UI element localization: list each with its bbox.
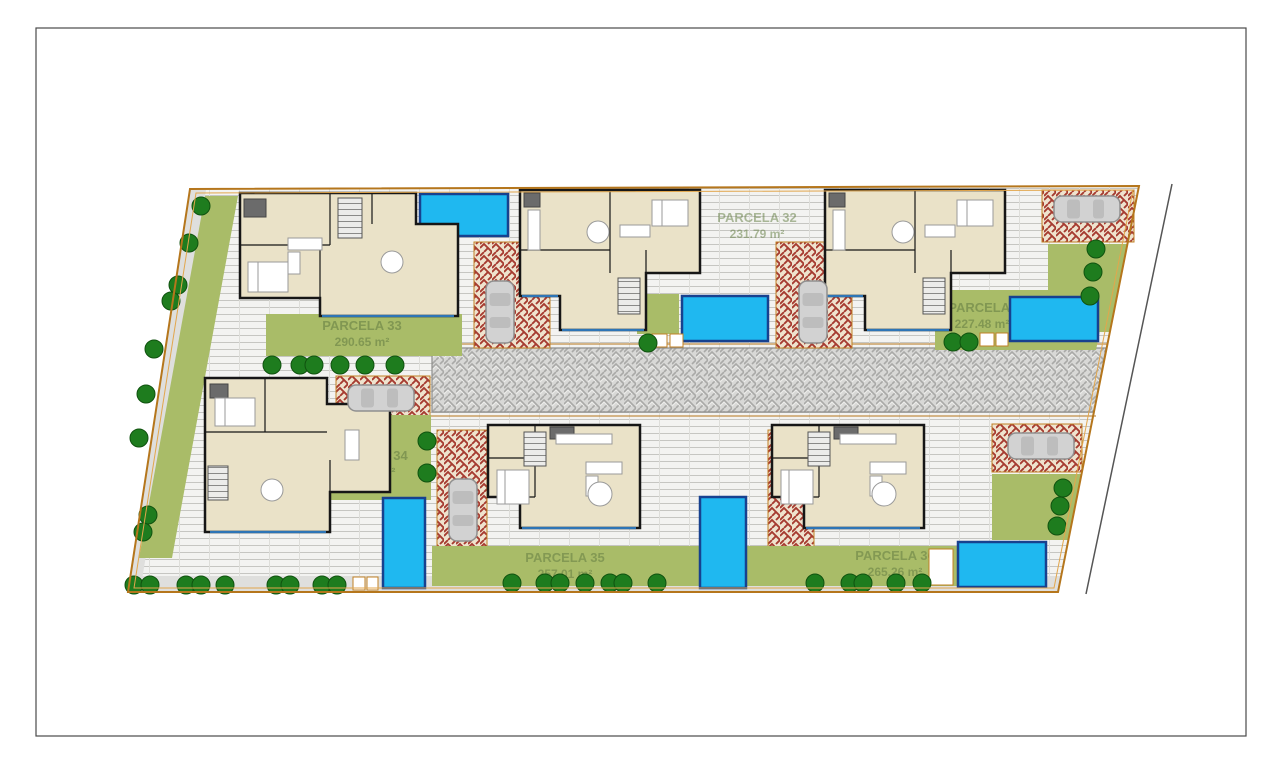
parcel-name: PARCELA 35 <box>525 550 604 565</box>
parcel-area: 231.79 m² <box>730 227 785 241</box>
parcel-name: PARCELA 33 <box>322 318 401 333</box>
drawing-sheet: PARCELA 33 290.65 m² PARCELA 34 301.94 m… <box>0 0 1280 768</box>
car <box>449 479 477 541</box>
car <box>348 385 414 411</box>
car <box>486 281 514 343</box>
parcel-name: PARCELA 36 <box>855 548 934 563</box>
pool <box>682 296 768 341</box>
pool <box>700 497 746 588</box>
parcel-area: 227.48 m² <box>955 317 1010 331</box>
car <box>1054 196 1120 222</box>
pool <box>958 542 1046 587</box>
site-plan-drawing: PARCELA 33 290.65 m² PARCELA 34 301.94 m… <box>0 0 1280 768</box>
parcel-area: 290.65 m² <box>335 335 390 349</box>
car <box>799 281 827 343</box>
pool <box>383 498 425 588</box>
access-road <box>426 344 1108 416</box>
parcel-name: PARCELA 32 <box>717 210 796 225</box>
car <box>1008 433 1074 459</box>
